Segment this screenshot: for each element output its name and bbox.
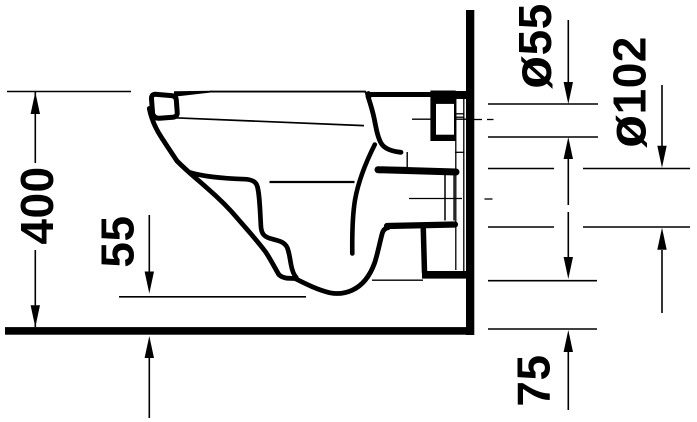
svg-text:400: 400	[11, 166, 63, 244]
svg-text:ø102: ø102	[598, 36, 658, 148]
svg-text:55: 55	[92, 215, 144, 267]
svg-text:ø55: ø55	[503, 3, 563, 89]
svg-text:75: 75	[508, 354, 560, 406]
